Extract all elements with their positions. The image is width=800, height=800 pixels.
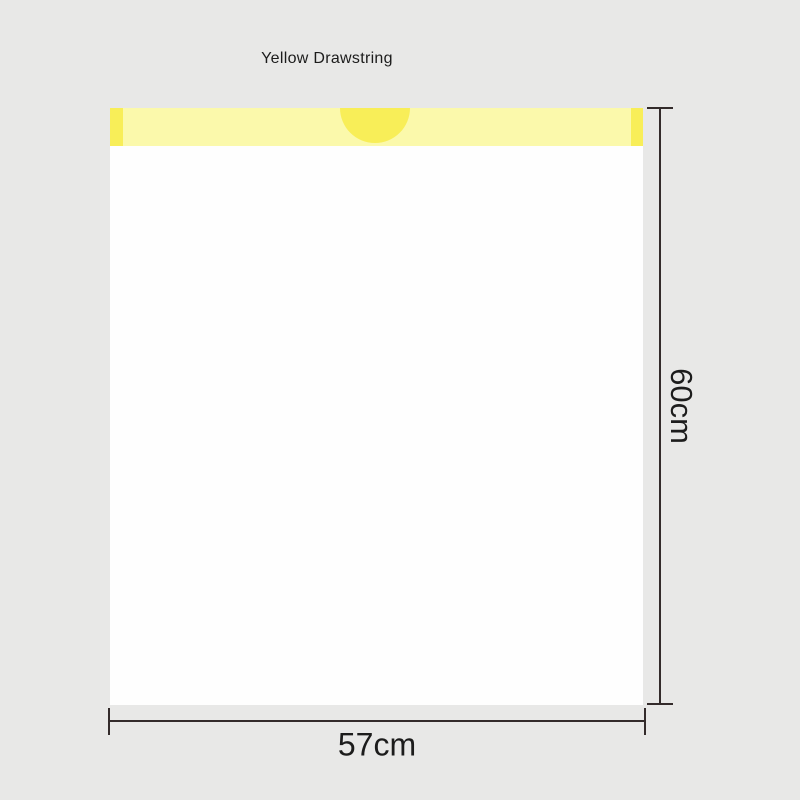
width-dimension-cap-right (644, 708, 646, 735)
width-dimension-line (109, 720, 645, 722)
bag-body (110, 108, 643, 705)
product-dimension-diagram: Yellow Drawstring 60cm 57cm (0, 0, 800, 800)
height-dimension-cap-bottom (647, 703, 673, 705)
drawstring-band-left-fold (110, 108, 123, 146)
height-dimension-label: 60cm (663, 368, 699, 444)
drawstring-band (110, 108, 643, 146)
width-dimension-label: 57cm (338, 727, 416, 764)
width-dimension-cap-left (108, 708, 110, 735)
drawstring-hole (340, 108, 410, 143)
height-dimension-cap-top (647, 107, 673, 109)
height-dimension-line (659, 108, 661, 705)
drawstring-band-right-fold (631, 108, 643, 146)
drawstring-annotation-label: Yellow Drawstring (261, 50, 393, 68)
